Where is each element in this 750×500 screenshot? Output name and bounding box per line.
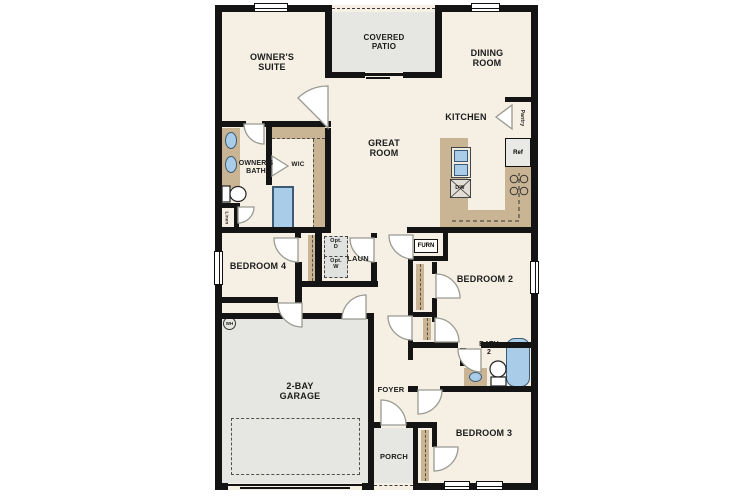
- room-label-dining-room: DINING ROOM: [471, 48, 504, 69]
- room-label-laundry: LAUN: [347, 255, 369, 264]
- stove-burner: [520, 187, 528, 195]
- door-arc-hall-closet: [388, 316, 412, 340]
- room-label-owners-bath: OWNER'S BATH: [239, 160, 274, 176]
- door-swings-layer: [0, 0, 750, 500]
- label-dishwasher: DW: [455, 185, 465, 191]
- room-label-porch: PORCH: [380, 453, 408, 462]
- door-fold-wic: [272, 156, 288, 176]
- door-arc-bedroom2: [435, 318, 459, 342]
- room-label-bath2: BATH 2: [479, 341, 499, 357]
- label-optional-dryer: Opt. D: [330, 238, 342, 251]
- label-optional-washer: Opt. W: [330, 258, 342, 271]
- label-linen: Linen: [224, 212, 229, 225]
- room-label-bedroom2: BEDROOM 2: [457, 274, 513, 284]
- door-arc-furnace: [389, 235, 413, 259]
- toilet-bowl-owners: [230, 187, 246, 202]
- room-label-bedroom4: BEDROOM 4: [230, 261, 286, 271]
- room-label-owners-suite: OWNER'S SUITE: [250, 52, 294, 73]
- room-label-kitchen: KITCHEN: [445, 112, 486, 122]
- door-arc-bedroom4: [278, 303, 302, 327]
- stove-burner: [510, 187, 518, 195]
- room-label-great-room: GREAT ROOM: [368, 138, 400, 159]
- door-arc-owners-bath: [244, 124, 264, 144]
- label-pantry: Pantry: [518, 110, 524, 127]
- door-arc-bedroom3-closet: [434, 447, 458, 471]
- counter-edge-dashed: [452, 173, 519, 221]
- room-label-covered-patio: COVERED PATIO: [364, 33, 405, 51]
- door-arc-linen: [238, 207, 254, 223]
- room-label-garage: 2-BAY GARAGE: [280, 381, 321, 402]
- door-arc-bedroom3: [418, 390, 442, 414]
- door-arc-bedroom4-closet: [274, 238, 298, 262]
- room-label-bedroom3: BEDROOM 3: [456, 428, 512, 438]
- stove-burner: [520, 175, 528, 183]
- stove-burner: [510, 175, 518, 183]
- floor-plan: Ref FURN WH: [0, 0, 750, 500]
- door-arc-garage: [342, 295, 366, 319]
- door-fold-pantry: [496, 105, 512, 129]
- toilet-tank-bath2: [491, 377, 506, 386]
- door-arc-front-entry: [381, 400, 406, 425]
- toilet-bowl-bath2: [490, 361, 506, 377]
- door-arc-bath2: [458, 349, 481, 372]
- toilet-tank-owners: [222, 186, 230, 202]
- room-label-foyer: FOYER: [378, 386, 405, 395]
- room-label-wic: WIC: [291, 161, 304, 168]
- door-arc-owners-suite: [298, 86, 328, 128]
